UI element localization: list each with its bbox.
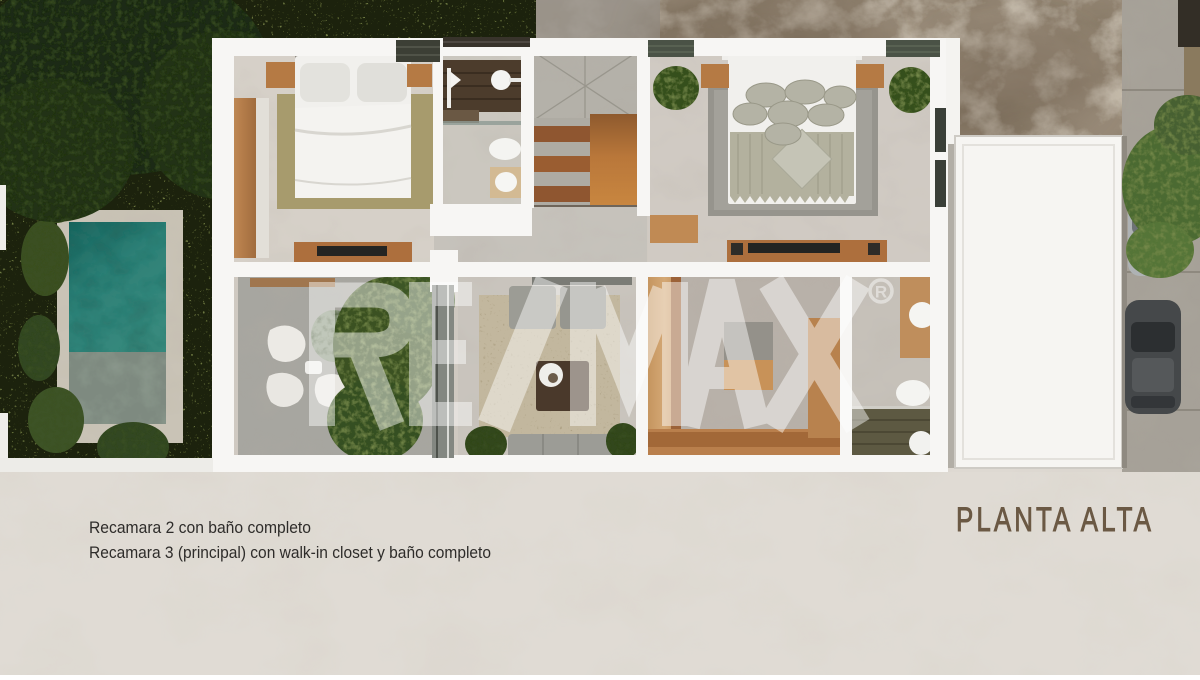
svg-text:Recamara 3 (principal) con wal: Recamara 3 (principal) con walk-in close…	[89, 543, 491, 562]
svg-text:PLANTA ALTA: PLANTA ALTA	[956, 501, 1154, 539]
svg-text:Recamara 2 con baño completo: Recamara 2 con baño completo	[89, 518, 311, 537]
svg-text:R: R	[875, 283, 887, 302]
